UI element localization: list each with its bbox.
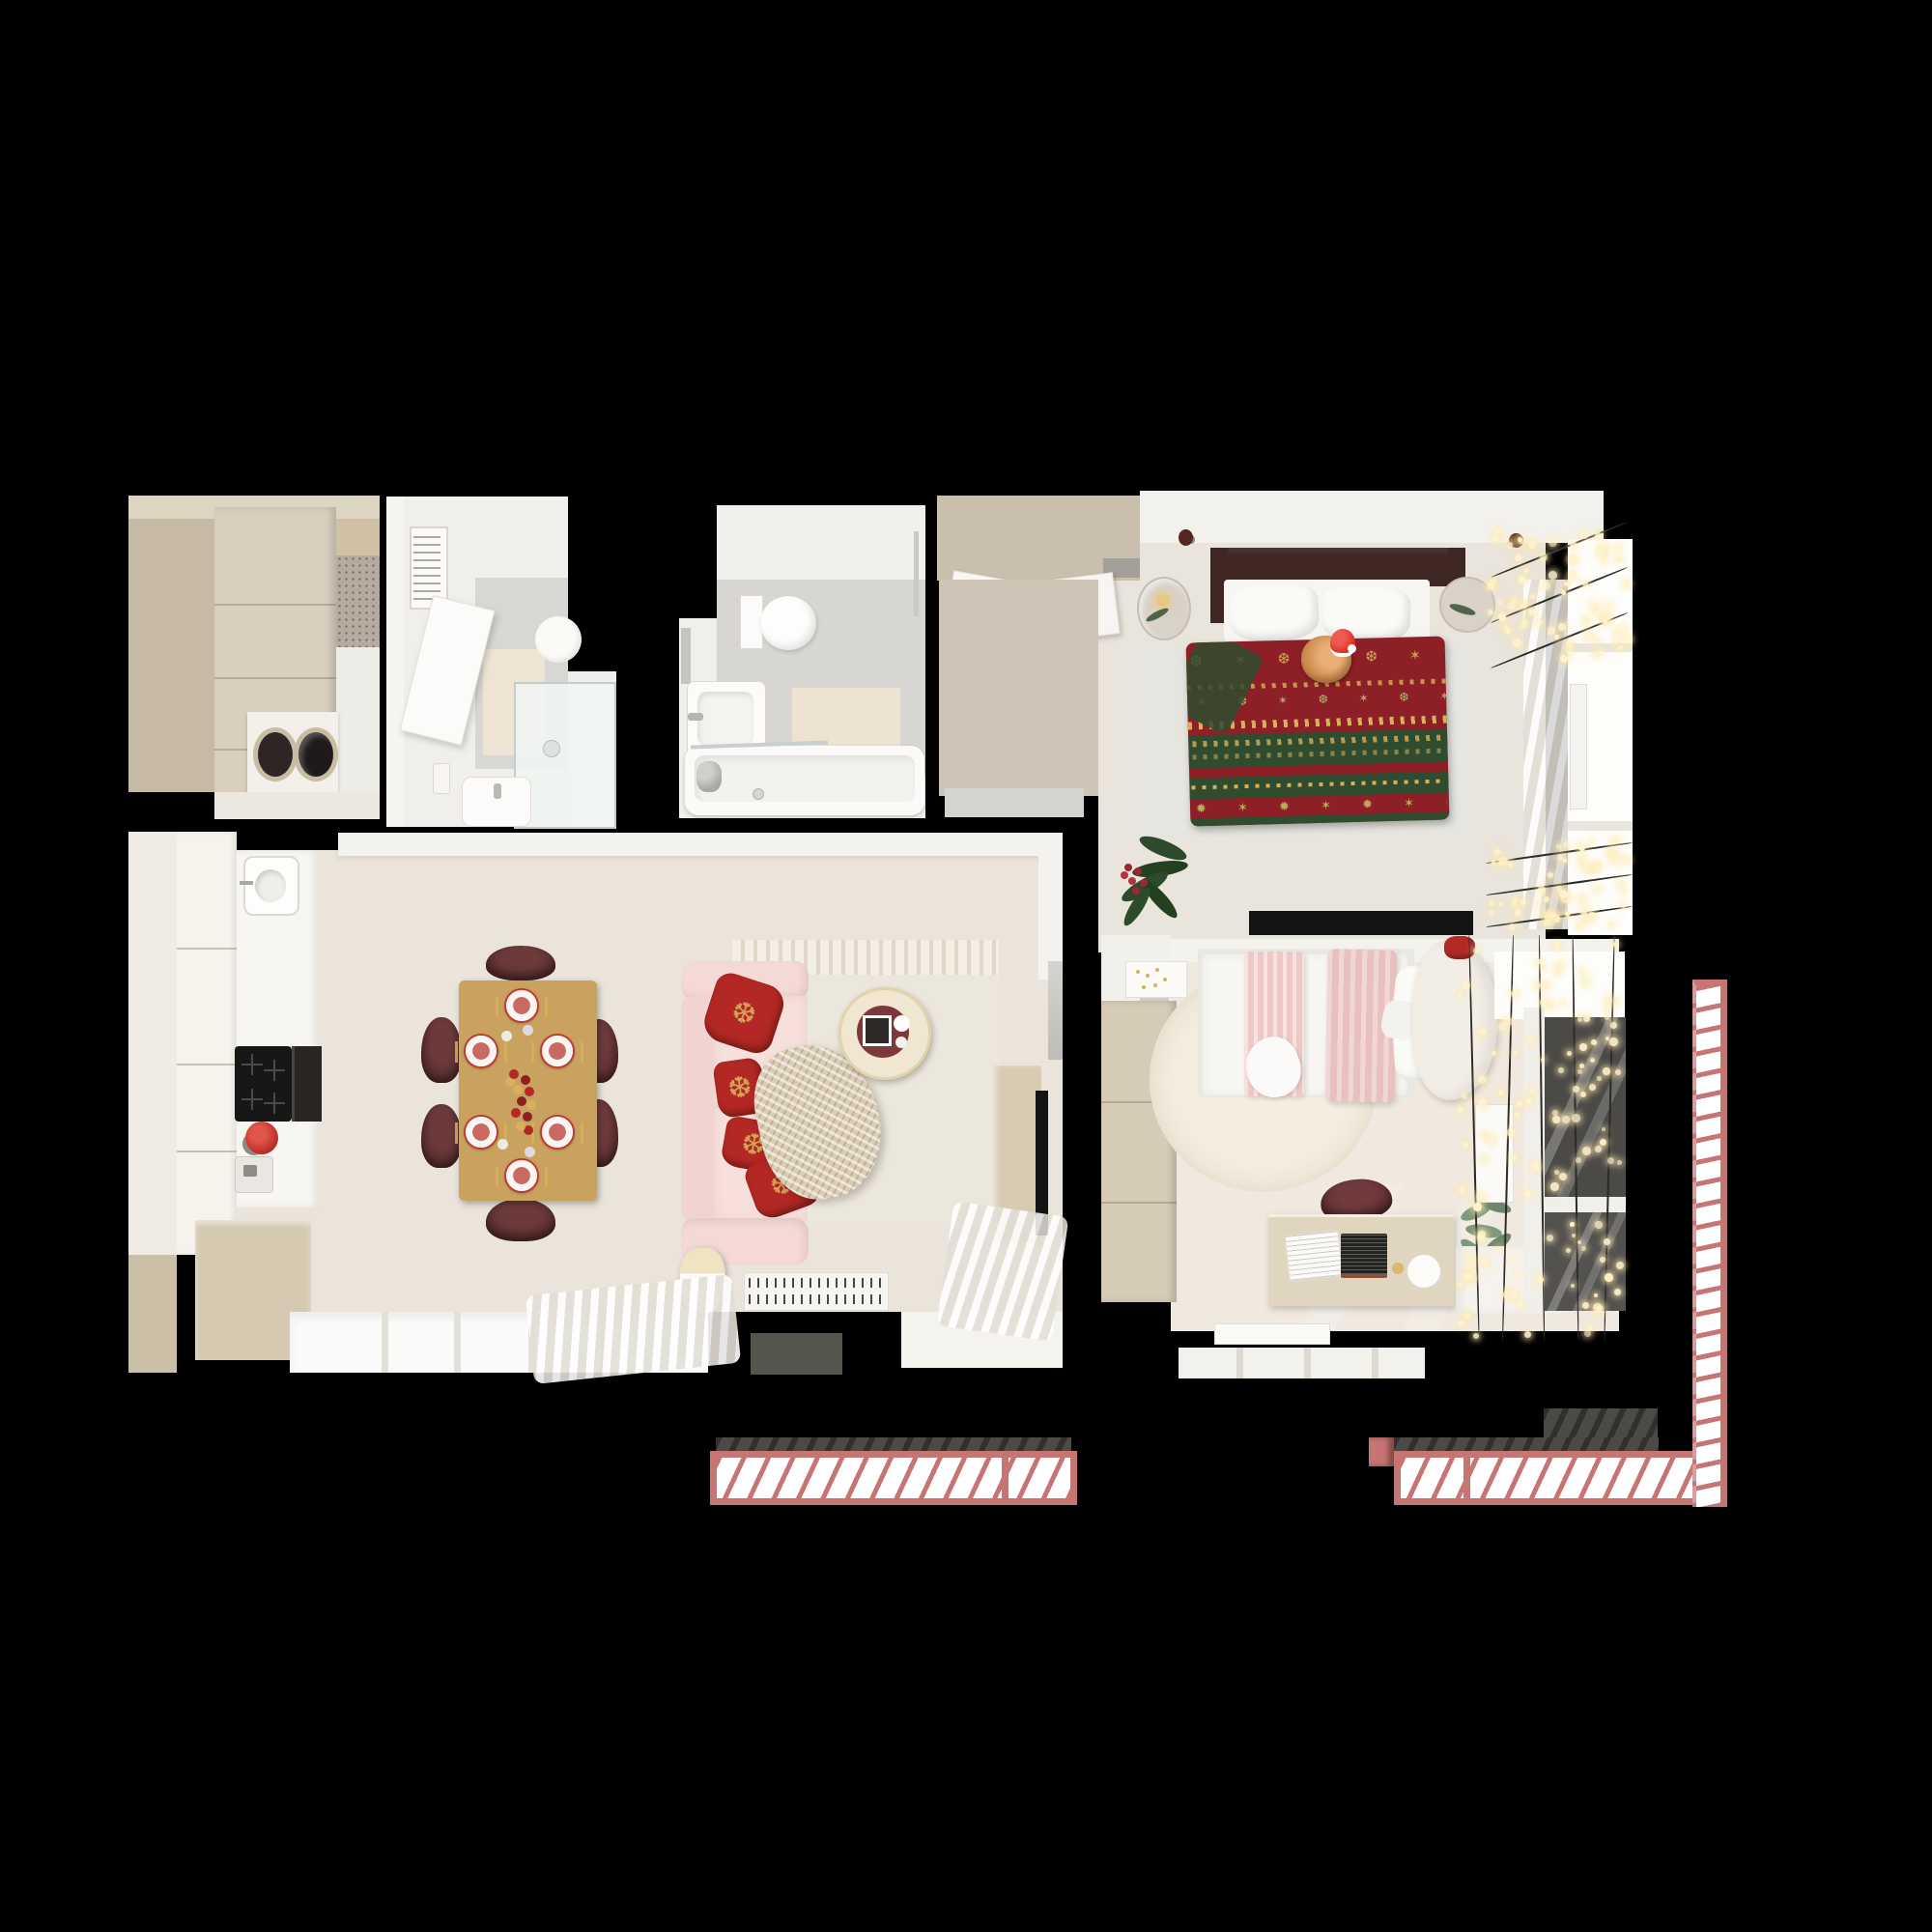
light-bulb-icon — [1498, 600, 1503, 605]
light-bulb-icon — [1603, 559, 1607, 564]
light-bulb-icon — [1563, 841, 1570, 848]
light-bulb-icon — [1616, 556, 1622, 562]
light-bulb-icon — [1578, 844, 1585, 851]
light-bulb-icon — [1515, 1113, 1520, 1118]
towel-hook — [433, 763, 450, 794]
light-bulb-icon — [1564, 582, 1569, 586]
burner-icon — [241, 1089, 263, 1110]
window-radiator — [1570, 684, 1587, 810]
light-bulb-icon — [1620, 888, 1626, 894]
radiator-slats — [749, 1278, 884, 1288]
light-bulb-icon — [1605, 603, 1612, 610]
kitchen-sink — [243, 856, 299, 916]
radiator-slats — [749, 1294, 884, 1304]
open-book — [1285, 1230, 1344, 1282]
gold-confetti-icon — [1136, 970, 1140, 974]
light-bulb-icon — [1534, 982, 1541, 989]
light-bulb-icon — [1610, 838, 1615, 842]
light-bulb-icon — [1517, 1101, 1522, 1107]
ornament-centerpiece — [509, 1069, 519, 1079]
desk — [1268, 1214, 1454, 1306]
light-bulb-icon — [1614, 1289, 1621, 1295]
towel-ladder-rungs — [413, 532, 440, 600]
bedroom2-bottom-wall — [1179, 1348, 1425, 1378]
burner-icon — [264, 1060, 285, 1081]
entry-laundry-room — [128, 496, 380, 819]
radiator — [744, 1272, 889, 1311]
ceiling-spotlight-icon — [1179, 529, 1193, 546]
light-bulb-icon — [1582, 581, 1588, 586]
light-bulb-icon — [1595, 639, 1600, 643]
light-bulb-icon — [1615, 544, 1622, 551]
light-bulb-icon — [1582, 1147, 1591, 1155]
shower-rail — [914, 531, 919, 616]
balcony-railing — [710, 1451, 1077, 1505]
light-curtain — [1456, 935, 1625, 1341]
light-bulb-icon — [1508, 863, 1513, 867]
light-bulb-icon — [1492, 861, 1495, 865]
railing-post — [1463, 1458, 1470, 1498]
basin-inner — [697, 692, 753, 746]
light-bulb-icon — [1578, 895, 1586, 903]
light-bulb-icon — [1534, 902, 1539, 907]
light-bulb-icon — [1595, 1221, 1603, 1229]
light-wire — [1572, 935, 1579, 1341]
light-bulb-icon — [1552, 1110, 1558, 1116]
mosaic-tile-patch — [336, 555, 380, 647]
light-bulb-icon — [1498, 1023, 1506, 1031]
light-bulb-icon — [1458, 1283, 1463, 1288]
light-bulb-icon — [1498, 861, 1503, 866]
light-bulb-icon — [1459, 1186, 1466, 1194]
light-bulb-icon — [1577, 1240, 1581, 1244]
light-bulb-icon — [1595, 1146, 1602, 1152]
entry-floor-bottom — [214, 792, 380, 819]
entry-floor-left — [128, 496, 214, 792]
gold-trinket-icon — [1392, 1263, 1404, 1274]
place-setting — [504, 1158, 539, 1193]
light-bulb-icon — [1579, 1064, 1584, 1068]
light-bulb-icon — [1542, 582, 1550, 590]
place-setting — [464, 1115, 498, 1150]
sink-faucet-icon — [240, 881, 253, 885]
cabinet-seam — [177, 1151, 237, 1152]
light-bulb-icon — [1541, 1058, 1545, 1062]
light-bulb-icon — [1463, 981, 1470, 989]
light-bulb-icon — [1579, 969, 1585, 975]
light-bulb-icon — [1582, 617, 1589, 624]
living-right-wall — [1038, 833, 1063, 980]
light-bulb-icon — [1550, 1182, 1559, 1191]
tub-drain-icon — [753, 788, 764, 800]
light-bulb-icon — [1527, 1037, 1534, 1044]
light-bulb-icon — [1548, 1003, 1554, 1009]
light-bulb-icon — [1604, 1238, 1610, 1245]
light-bulb-icon — [1597, 548, 1605, 556]
light-bulb-icon — [1572, 1114, 1580, 1122]
doormat — [945, 788, 1084, 817]
bathroom-shower — [386, 497, 616, 827]
fir-sprig-icon — [1448, 602, 1476, 617]
light-bulb-icon — [1577, 1017, 1582, 1022]
light-bulb-icon — [1579, 1043, 1587, 1051]
garland-top — [1486, 526, 1633, 663]
light-bulb-icon — [1559, 890, 1568, 898]
built-in-oven — [292, 1046, 322, 1122]
saucer-icon — [501, 1031, 512, 1041]
place-setting — [540, 1034, 575, 1068]
light-bulb-icon — [1573, 1086, 1579, 1093]
kitchen-tall-cabinets — [177, 832, 237, 1255]
santa-hat-pom — [1348, 644, 1356, 653]
light-bulb-icon — [1582, 1302, 1589, 1309]
window-frame — [454, 1312, 461, 1373]
light-bulb-icon — [1477, 1234, 1485, 1241]
light-bulb-icon — [1548, 872, 1553, 878]
light-bulb-icon — [1529, 1088, 1535, 1094]
light-bulb-icon — [1526, 1098, 1532, 1104]
light-bulb-icon — [1472, 1276, 1477, 1281]
balcony-bottom-left — [710, 1435, 1077, 1505]
light-bulb-icon — [1494, 849, 1500, 855]
light-bulb-icon — [1536, 619, 1543, 626]
light-bulb-icon — [1623, 857, 1630, 864]
bathroom-tub — [679, 505, 925, 818]
balcony-wall-stub — [1369, 1437, 1394, 1466]
light-bulb-icon — [1613, 639, 1618, 644]
light-bulb-icon — [1524, 569, 1528, 573]
light-bulb-icon — [1581, 1246, 1586, 1251]
light-bulb-icon — [1540, 999, 1548, 1007]
light-bulb-icon — [1605, 1006, 1610, 1010]
place-setting — [464, 1034, 498, 1068]
light-bulb-icon — [1473, 1203, 1482, 1211]
entry-wood-floor — [939, 580, 1098, 796]
light-bulb-icon — [1481, 1259, 1489, 1266]
light-bulb-icon — [1576, 1157, 1581, 1163]
coffee-machine — [235, 1156, 273, 1193]
light-bulb-icon — [1513, 639, 1521, 647]
balcony-door-opening — [751, 1333, 842, 1375]
light-bulb-icon — [1476, 1192, 1485, 1201]
light-bulb-icon — [1597, 1076, 1602, 1081]
light-bulb-icon — [1561, 590, 1566, 595]
washbasin — [462, 777, 531, 827]
round-mirror — [535, 616, 582, 663]
light-bulb-icon — [1458, 1107, 1463, 1113]
light-bulb-icon — [1616, 838, 1620, 842]
light-bulb-icon — [1505, 628, 1511, 634]
light-bulb-icon — [1492, 535, 1498, 541]
light-bulb-icon — [1590, 1058, 1595, 1063]
light-bulb-icon — [1580, 1092, 1586, 1097]
light-bulb-icon — [1462, 1094, 1467, 1099]
light-bulb-icon — [1544, 896, 1549, 902]
light-bulb-icon — [1602, 1127, 1605, 1131]
light-bulb-icon — [1594, 865, 1600, 870]
light-bulb-icon — [1584, 631, 1593, 639]
light-bulb-icon — [1583, 1015, 1590, 1022]
entry-ceiling-beige — [336, 519, 380, 555]
light-bulb-icon — [1556, 962, 1564, 970]
light-bulb-icon — [1488, 610, 1493, 615]
light-bulb-icon — [1590, 840, 1594, 844]
light-bulb-icon — [1578, 856, 1583, 861]
light-bulb-icon — [1542, 981, 1549, 989]
light-bulb-icon — [1507, 542, 1513, 548]
blanket-geometric-row — [1193, 749, 1444, 760]
light-bulb-icon — [1458, 1320, 1464, 1326]
cabinet-seam — [177, 1064, 237, 1065]
light-bulb-icon — [1508, 602, 1516, 610]
light-bulb-icon — [1518, 576, 1525, 583]
cup-icon — [894, 1015, 910, 1032]
window-frame — [1372, 1348, 1378, 1378]
light-bulb-icon — [1610, 855, 1619, 864]
bottom-radiator — [1214, 1323, 1330, 1345]
light-bulb-icon — [1552, 1116, 1560, 1123]
basin-faucet-icon — [494, 783, 501, 799]
light-bulb-icon — [1598, 650, 1603, 655]
bathtub-inner — [695, 755, 915, 802]
bathroom1-wall — [386, 497, 404, 827]
tub-faucet-icon — [696, 761, 722, 792]
light-bulb-icon — [1584, 1330, 1591, 1337]
light-bulb-icon — [1512, 1155, 1517, 1160]
light-bulb-icon — [1589, 869, 1593, 873]
light-bulb-icon — [1510, 1257, 1515, 1262]
light-bulb-icon — [1581, 532, 1588, 539]
light-bulb-icon — [1624, 636, 1632, 643]
window-frame — [1236, 1348, 1243, 1378]
light-bulb-icon — [1613, 942, 1618, 947]
light-bulb-icon — [1482, 1132, 1487, 1137]
light-bulb-icon — [1556, 844, 1561, 849]
induction-cooktop — [235, 1046, 292, 1122]
light-bulb-icon — [1520, 622, 1527, 629]
light-bulb-icon — [1554, 970, 1559, 975]
light-bulb-icon — [1512, 901, 1518, 907]
light-bulb-icon — [1567, 1051, 1572, 1056]
basin-faucet-icon — [688, 713, 703, 721]
light-bulb-icon — [1463, 1313, 1470, 1320]
light-bulb-icon — [1603, 1067, 1610, 1075]
light-bulb-icon — [1520, 899, 1526, 905]
light-bulb-icon — [1610, 1022, 1617, 1029]
light-bulb-icon — [1498, 613, 1506, 621]
light-bulb-icon — [1569, 572, 1576, 579]
dining-chair — [486, 1199, 555, 1241]
light-bulb-icon — [1595, 532, 1602, 539]
wall-mirror — [681, 628, 691, 684]
light-bulb-icon — [1481, 1156, 1488, 1163]
balcony-floor-upper — [1544, 1408, 1658, 1439]
santa-hat-icon — [1330, 629, 1355, 657]
light-bulb-icon — [1528, 541, 1536, 549]
washing-machine-door-icon — [253, 727, 298, 781]
light-bulb-icon — [1548, 627, 1555, 635]
dining-chair — [486, 946, 555, 980]
light-bulb-icon — [1530, 594, 1535, 599]
light-bulb-icon — [1582, 979, 1590, 986]
dining-table — [459, 980, 597, 1201]
light-bulb-icon — [1511, 990, 1519, 998]
light-bulb-icon — [1600, 1139, 1606, 1146]
burner-icon — [264, 1093, 285, 1114]
light-bulb-icon — [1524, 1190, 1531, 1197]
light-bulb-icon — [1562, 1001, 1566, 1005]
balcony-bottom-right — [1367, 1406, 1727, 1505]
curtains-right — [937, 1201, 1069, 1341]
light-bulb-icon — [1560, 655, 1568, 663]
light-bulb-icon — [1494, 528, 1500, 534]
light-bulb-icon — [1515, 554, 1521, 561]
light-bulb-icon — [1537, 959, 1542, 964]
window-frame — [1568, 821, 1633, 831]
light-bulb-icon — [1540, 554, 1548, 561]
light-bulb-icon — [1513, 897, 1518, 902]
light-bulb-icon — [1531, 1162, 1540, 1171]
light-bulb-icon — [1569, 556, 1576, 563]
blanket-zigzag-row — [1191, 780, 1446, 790]
light-bulb-icon — [1614, 630, 1619, 635]
light-bulb-icon — [1513, 1051, 1518, 1056]
blanket-green-band — [1189, 771, 1448, 799]
light-bulb-icon — [1458, 992, 1463, 997]
light-bulb-icon — [1490, 901, 1494, 906]
place-setting — [504, 988, 539, 1023]
desk-lamp — [1406, 1254, 1441, 1289]
light-bulb-icon — [1524, 1331, 1531, 1338]
window-frame — [1304, 1348, 1311, 1378]
round-coffee-table — [838, 987, 931, 1080]
light-bulb-icon — [1623, 581, 1630, 587]
mirror-panel — [1048, 961, 1063, 1060]
light-bulb-icon — [1570, 541, 1577, 548]
light-bulb-icon — [1566, 1248, 1571, 1253]
light-bulb-icon — [1479, 1029, 1486, 1036]
light-bulb-icon — [1591, 1039, 1597, 1045]
fir-sprig-icon — [1145, 606, 1170, 623]
railing-post — [1002, 1458, 1009, 1498]
light-bulb-icon — [1537, 1276, 1544, 1283]
shower-head-icon — [543, 740, 560, 757]
light-bulb-icon — [1562, 1116, 1570, 1123]
light-bulb-icon — [1473, 948, 1479, 953]
tray-board — [863, 1015, 892, 1046]
light-bulb-icon — [1467, 1255, 1474, 1262]
light-bulb-icon — [1487, 582, 1494, 590]
light-bulb-icon — [1507, 1128, 1516, 1137]
light-bulb-icon — [1600, 1257, 1605, 1263]
blanket-green-band — [1188, 728, 1448, 768]
red-kettle — [245, 1122, 278, 1154]
wardrobe-seam — [1101, 1202, 1177, 1204]
light-bulb-icon — [1604, 620, 1607, 624]
light-bulb-icon — [1558, 1067, 1564, 1073]
light-bulb-icon — [1466, 1264, 1473, 1270]
cup-icon — [895, 1037, 907, 1048]
light-bulb-icon — [1605, 1015, 1609, 1020]
light-bulb-icon — [1517, 1301, 1523, 1308]
light-bulb-icon — [1563, 859, 1567, 863]
light-bulb-icon — [1588, 1325, 1593, 1330]
sink-basin — [255, 869, 286, 902]
balcony-railing — [1394, 1451, 1727, 1505]
light-bulb-icon — [1609, 1037, 1618, 1046]
berry-cluster-icon — [1124, 864, 1132, 871]
light-bulb-icon — [1570, 1222, 1575, 1227]
burner-icon — [241, 1054, 263, 1075]
light-bulb-icon — [1463, 1272, 1472, 1281]
light-bulb-icon — [1463, 1142, 1468, 1148]
light-bulb-icon — [1607, 1157, 1614, 1164]
light-bulb-icon — [1571, 1284, 1575, 1288]
nightstand-left — [1137, 577, 1191, 640]
light-bulb-icon — [1528, 609, 1535, 615]
tv-sideboard-shadow — [1249, 911, 1473, 934]
light-bulb-icon — [1496, 1247, 1501, 1252]
dryer-door-icon — [294, 727, 338, 781]
kitchen-cabinet-wood-base — [128, 1255, 177, 1373]
living-top-wall — [338, 833, 1063, 856]
balcony-right-rail — [1692, 980, 1727, 1507]
pillow — [1229, 582, 1321, 643]
light-bulb-icon — [1617, 1160, 1622, 1165]
light-bulb-icon — [1616, 1262, 1624, 1269]
light-bulb-icon — [1548, 538, 1557, 547]
floor-plan-canvas: ❆ ✶ ❆ ✶ ❆ ✶ ❆ ✶ ❆ ✶ ❆ ✶ ❆ ✶ ✹ ✶ ✹ ✶ ✹ ✶ … — [0, 0, 1932, 1932]
light-bulb-icon — [1559, 1173, 1567, 1180]
light-bulb-icon — [1618, 645, 1623, 650]
light-bulb-icon — [1515, 1272, 1520, 1277]
light-bulb-icon — [1498, 1090, 1504, 1095]
light-bulb-icon — [1554, 1170, 1559, 1175]
light-bulb-icon — [1614, 999, 1619, 1004]
light-bulb-icon — [1558, 623, 1566, 631]
light-bulb-icon — [1589, 1084, 1596, 1091]
light-bulb-icon — [1553, 943, 1560, 950]
light-bulb-icon — [1620, 625, 1628, 633]
coffee-machine-detail — [243, 1165, 257, 1177]
bathtub — [685, 746, 924, 815]
toilet-bowl — [760, 596, 816, 650]
laptop — [1341, 1234, 1387, 1278]
light-bulb-icon — [1605, 1273, 1613, 1282]
cabinet-seam — [177, 948, 237, 950]
plant-leaf — [1137, 832, 1189, 865]
light-bulb-icon — [1594, 886, 1601, 893]
light-bulb-icon — [1478, 1075, 1487, 1084]
light-bulb-icon — [1594, 609, 1600, 614]
blanket-geometric-row — [1192, 735, 1443, 748]
light-bulb-icon — [1618, 880, 1625, 887]
bedroom-second — [1101, 914, 1644, 1383]
light-bulb-icon — [1487, 1135, 1495, 1144]
light-bulb-icon — [1577, 1069, 1582, 1074]
light-bulb-icon — [1499, 902, 1503, 906]
light-bulb-icon — [1548, 571, 1557, 580]
light-bulb-icon — [1596, 1305, 1604, 1313]
light-bulb-icon — [1547, 1235, 1553, 1241]
light-bulb-icon — [1492, 1051, 1496, 1056]
potted-plant — [1109, 837, 1190, 925]
light-bulb-icon — [1478, 1098, 1487, 1107]
living-kitchen — [128, 832, 1063, 1373]
light-bulb-icon — [1615, 1069, 1621, 1075]
wall-shelf — [1125, 961, 1187, 998]
candle-icon — [1156, 594, 1169, 607]
